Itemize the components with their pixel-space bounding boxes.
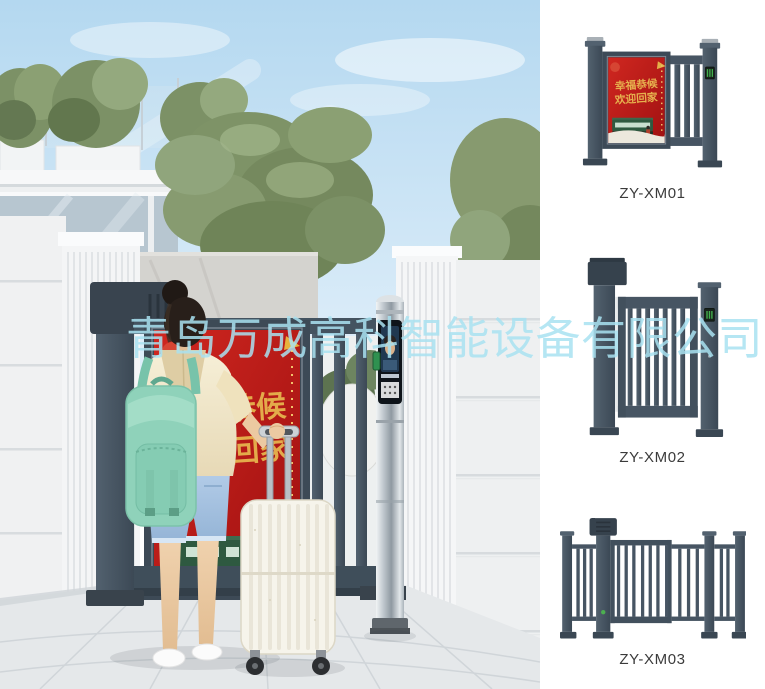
hand: [269, 423, 285, 439]
gate-illustration-zy-xm03: [560, 518, 746, 644]
hero-photo: 幸福恭候 欢迎回家: [0, 0, 540, 689]
sneaker: [153, 649, 185, 667]
access-reader-icon: [601, 610, 605, 614]
product-card-zy-xm03: ZY-XM03: [540, 518, 765, 668]
product-card-zy-xm02: ZY-XM02: [540, 254, 765, 466]
gate-motor-box-icon: [587, 262, 626, 285]
sneaker: [192, 644, 222, 660]
catalog-page: 幸福恭候 欢迎回家: [0, 0, 765, 689]
card-reader: [373, 352, 380, 370]
hero-scene: 幸福恭候 欢迎回家: [0, 0, 540, 689]
product-model-label: ZY-XM02: [619, 449, 685, 466]
planter-pot: [318, 384, 386, 476]
product-card-zy-xm01: 幸福恭候 欢迎回家 ZY-XM: [540, 36, 765, 202]
product-model-label: ZY-XM01: [619, 185, 685, 202]
terminal-keypad: [381, 382, 399, 398]
gate-illustration-zy-xm02: [580, 254, 726, 439]
access-control-pillar: [370, 295, 410, 634]
gate-illustration-zy-xm01: 幸福恭候 欢迎回家: [580, 36, 726, 180]
product-model-label: ZY-XM03: [619, 651, 685, 668]
product-panel: 幸福恭候 欢迎回家 ZY-XM: [540, 0, 765, 689]
